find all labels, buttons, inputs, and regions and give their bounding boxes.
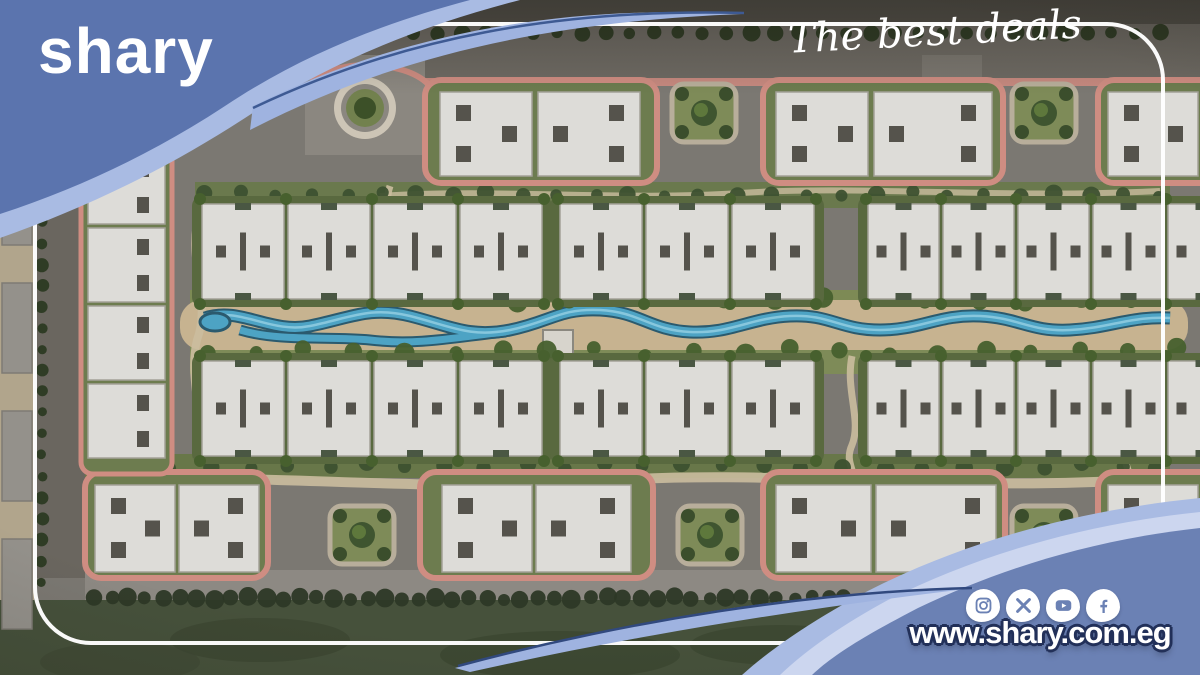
brand-logo: shary xyxy=(38,14,214,88)
website-link[interactable]: www.shary.com.eg xyxy=(903,615,1177,651)
flyer-canvas: shary The best deals www.shary.com.eg xyxy=(0,0,1200,675)
swoosh-decorations xyxy=(0,0,1200,675)
